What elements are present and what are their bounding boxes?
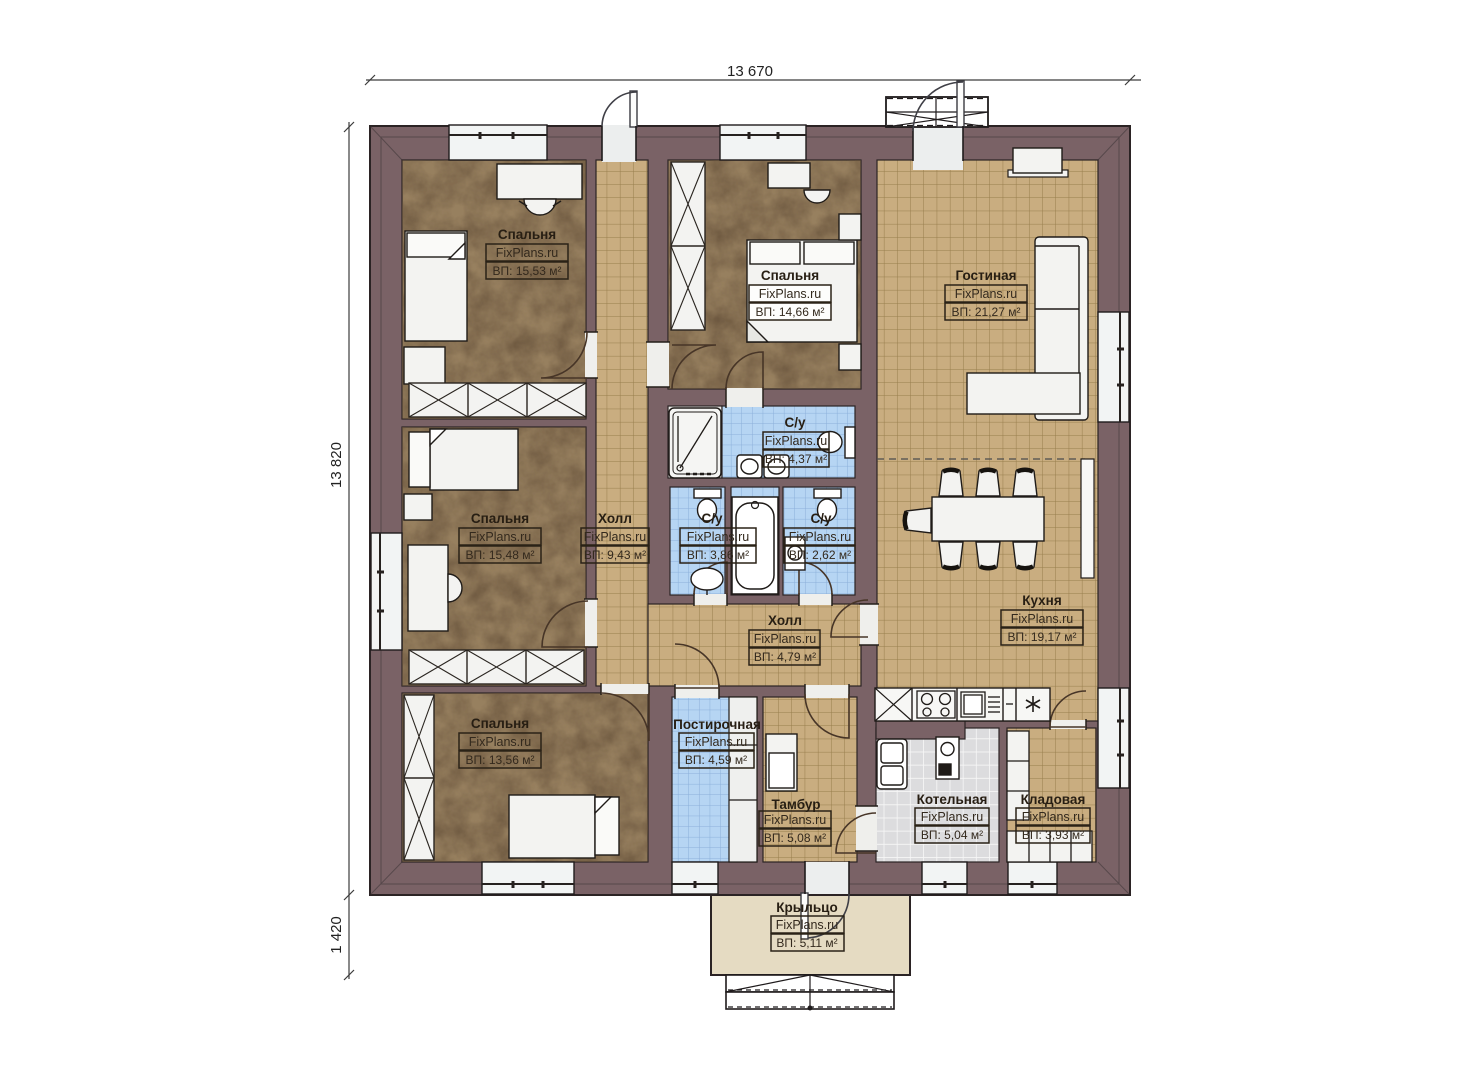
svg-text:FixPlans.ru: FixPlans.ru: [1022, 810, 1085, 824]
svg-text:С/у: С/у: [701, 511, 723, 526]
svg-text:Холл: Холл: [768, 613, 802, 628]
svg-text:С/у: С/у: [810, 511, 832, 526]
svg-text:Кухня: Кухня: [1022, 593, 1061, 608]
svg-text:13 670: 13 670: [727, 63, 773, 80]
svg-text:FixPlans.ru: FixPlans.ru: [955, 287, 1018, 301]
svg-text:FixPlans.ru: FixPlans.ru: [765, 434, 828, 448]
svg-text:FixPlans.ru: FixPlans.ru: [764, 813, 827, 827]
svg-text:FixPlans.ru: FixPlans.ru: [754, 632, 817, 646]
svg-text:FixPlans.ru: FixPlans.ru: [921, 810, 984, 824]
svg-text:FixPlans.ru: FixPlans.ru: [776, 918, 839, 932]
svg-text:Гостиная: Гостиная: [955, 268, 1016, 283]
svg-text:Холл: Холл: [598, 511, 632, 526]
svg-text:ВП: 19,17 м²: ВП: 19,17 м²: [1008, 630, 1077, 644]
svg-text:ВП: 2,62 м²: ВП: 2,62 м²: [789, 548, 851, 562]
svg-text:ВП: 21,27 м²: ВП: 21,27 м²: [952, 305, 1021, 319]
svg-text:ВП: 15,48 м²: ВП: 15,48 м²: [466, 548, 535, 562]
svg-text:FixPlans.ru: FixPlans.ru: [584, 530, 647, 544]
svg-text:FixPlans.ru: FixPlans.ru: [685, 735, 748, 749]
svg-text:ВП: 5,08 м²: ВП: 5,08 м²: [764, 831, 826, 845]
svg-text:FixPlans.ru: FixPlans.ru: [1011, 612, 1074, 626]
svg-text:Спальня: Спальня: [471, 716, 529, 731]
svg-text:FixPlans.ru: FixPlans.ru: [469, 530, 532, 544]
svg-text:С/у: С/у: [784, 415, 806, 430]
svg-text:ВП: 4,79 м²: ВП: 4,79 м²: [754, 650, 816, 664]
svg-text:ВП: 5,04 м²: ВП: 5,04 м²: [921, 828, 983, 842]
svg-text:Кладовая: Кладовая: [1021, 792, 1086, 807]
svg-text:FixPlans.ru: FixPlans.ru: [469, 735, 532, 749]
svg-text:ВП: 5,11 м²: ВП: 5,11 м²: [776, 936, 837, 950]
svg-text:ВП: 14,66 м²: ВП: 14,66 м²: [756, 305, 825, 319]
svg-text:Постирочная: Постирочная: [673, 717, 761, 732]
svg-text:ВП: 3,86 м²: ВП: 3,86 м²: [687, 548, 749, 562]
svg-text:Крыльцо: Крыльцо: [776, 900, 837, 915]
svg-text:FixPlans.ru: FixPlans.ru: [687, 530, 750, 544]
svg-text:ВП: 3,93 м²: ВП: 3,93 м²: [1022, 828, 1084, 842]
svg-text:FixPlans.ru: FixPlans.ru: [496, 246, 559, 260]
svg-text:ВП: 15,53 м²: ВП: 15,53 м²: [493, 264, 562, 278]
svg-text:13 820: 13 820: [328, 442, 345, 488]
svg-text:FixPlans.ru: FixPlans.ru: [789, 530, 852, 544]
svg-text:1 420: 1 420: [328, 916, 345, 954]
svg-text:Тамбур: Тамбур: [772, 797, 821, 812]
svg-text:FixPlans.ru: FixPlans.ru: [759, 287, 822, 301]
svg-text:Спальня: Спальня: [498, 227, 556, 242]
svg-text:ВП: 13,56 м²: ВП: 13,56 м²: [466, 753, 535, 767]
svg-text:Спальня: Спальня: [471, 511, 529, 526]
svg-text:ВП: 4,59 м²: ВП: 4,59 м²: [685, 753, 747, 767]
svg-text:Котельная: Котельная: [917, 792, 988, 807]
svg-text:ВП: 4,37 м²: ВП: 4,37 м²: [765, 452, 827, 466]
svg-text:Спальня: Спальня: [761, 268, 819, 283]
svg-text:ВП: 9,43 м²: ВП: 9,43 м²: [584, 548, 646, 562]
